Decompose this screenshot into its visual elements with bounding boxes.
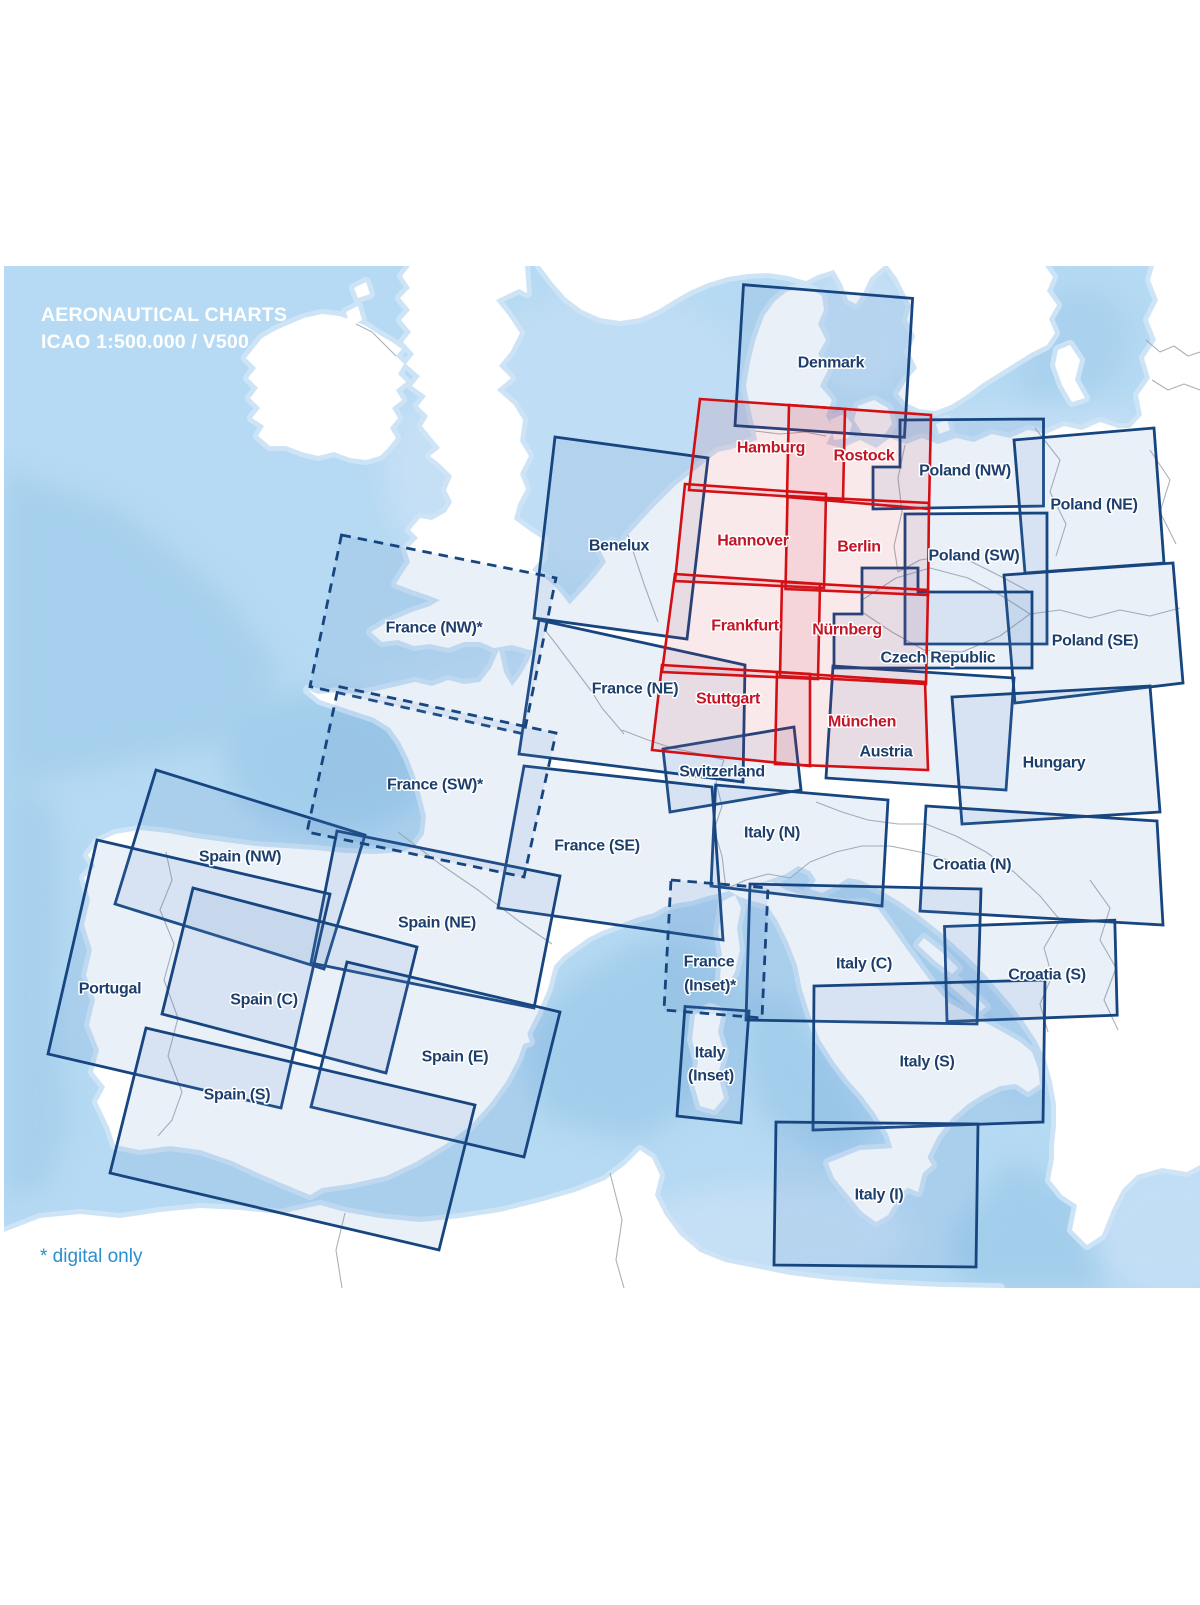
svg-text:Rostock: Rostock — [833, 448, 894, 465]
svg-text:(Inset): (Inset) — [688, 1068, 734, 1085]
svg-text:Croatia (N): Croatia (N) — [933, 857, 1011, 874]
svg-text:Italy (C): Italy (C) — [836, 956, 892, 973]
svg-text:France: France — [684, 954, 735, 971]
svg-text:* digital only: * digital only — [40, 1246, 143, 1267]
svg-text:Hamburg: Hamburg — [737, 440, 805, 457]
svg-text:Switzerland: Switzerland — [679, 764, 765, 781]
svg-text:Poland (NE): Poland (NE) — [1050, 497, 1137, 514]
svg-text:Denmark: Denmark — [798, 355, 865, 372]
svg-text:AERONAUTICAL CHARTS: AERONAUTICAL CHARTS — [41, 304, 287, 326]
svg-text:Spain (NW): Spain (NW) — [199, 849, 281, 866]
svg-text:Portugal: Portugal — [79, 981, 142, 998]
svg-text:Poland (SW): Poland (SW) — [929, 548, 1020, 565]
svg-text:(Inset)*: (Inset)* — [684, 978, 737, 995]
svg-text:Italy (N): Italy (N) — [744, 825, 800, 842]
svg-text:Spain (C): Spain (C) — [230, 992, 298, 1009]
svg-text:Frankfurt: Frankfurt — [711, 618, 779, 635]
svg-text:Italy (S): Italy (S) — [899, 1054, 954, 1071]
svg-text:Spain (E): Spain (E) — [422, 1049, 489, 1066]
svg-text:France (NE): France (NE) — [592, 681, 679, 698]
svg-text:Hungary: Hungary — [1023, 755, 1086, 772]
svg-text:Nürnberg: Nürnberg — [812, 622, 882, 639]
svg-text:München: München — [828, 714, 896, 731]
svg-text:Spain (S): Spain (S) — [204, 1087, 271, 1104]
svg-text:Spain (NE): Spain (NE) — [398, 915, 476, 932]
svg-text:Italy: Italy — [695, 1045, 726, 1062]
svg-text:Stuttgart: Stuttgart — [696, 691, 761, 708]
svg-text:Czech Republic: Czech Republic — [881, 650, 996, 667]
svg-text:Poland (NW): Poland (NW) — [919, 463, 1011, 480]
svg-text:France (SE): France (SE) — [554, 838, 640, 855]
svg-text:Benelux: Benelux — [589, 538, 650, 555]
svg-text:Hannover: Hannover — [717, 533, 788, 550]
svg-text:France (SW)*: France (SW)* — [387, 777, 484, 794]
svg-text:France (NW)*: France (NW)* — [386, 620, 484, 637]
svg-text:Poland (SE): Poland (SE) — [1052, 633, 1138, 650]
svg-text:Croatia (S): Croatia (S) — [1008, 967, 1086, 984]
svg-text:Italy (I): Italy (I) — [855, 1187, 904, 1204]
svg-text:Austria: Austria — [859, 744, 912, 761]
svg-text:Berlin: Berlin — [837, 539, 881, 556]
svg-text:ICAO 1:500.000 / V500: ICAO 1:500.000 / V500 — [41, 331, 249, 353]
